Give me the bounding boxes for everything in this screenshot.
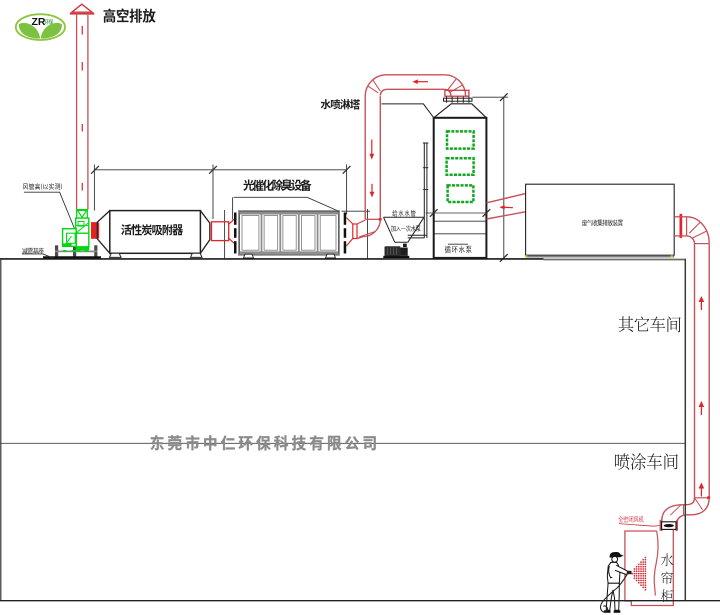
svg-text:ZR: ZR	[32, 16, 46, 28]
